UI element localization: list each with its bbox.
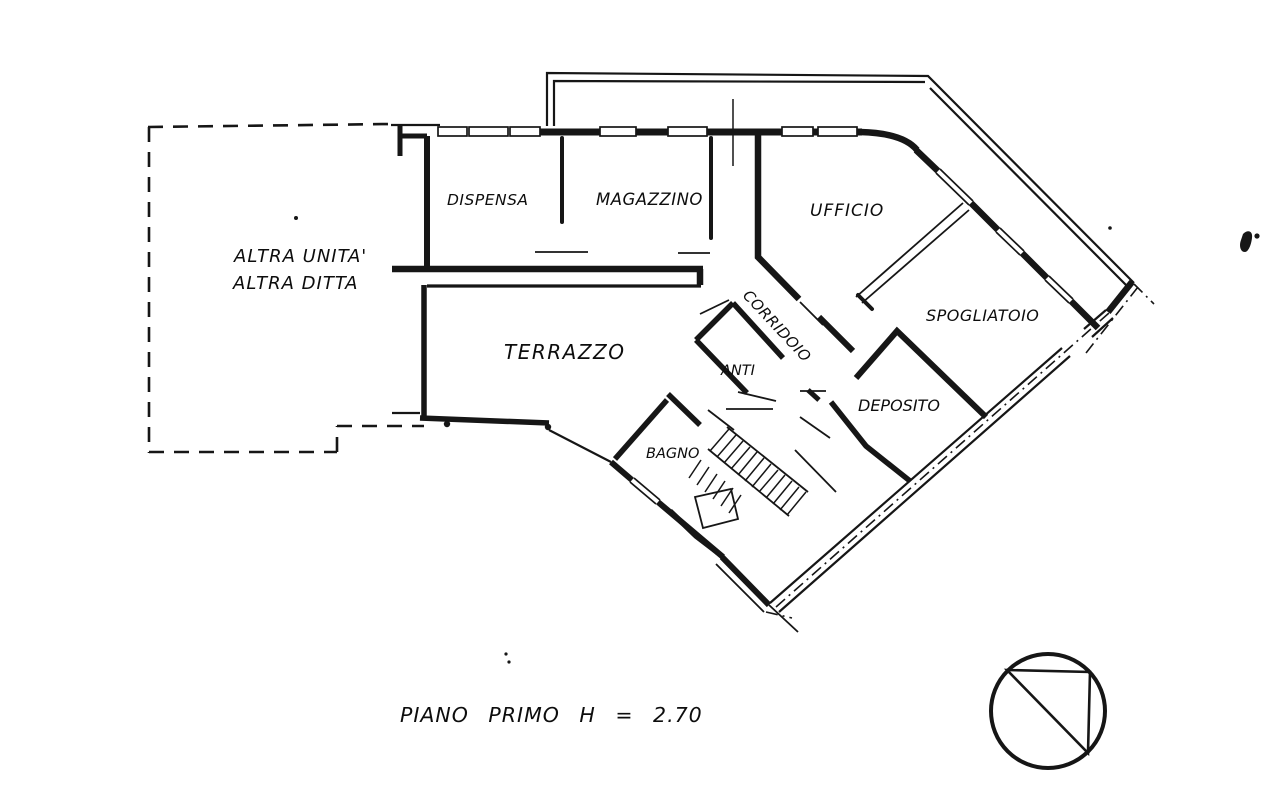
east-corner-wall: [1108, 282, 1132, 312]
floorplan-page: ALTRA UNITA' ALTRA DITTA DISPENSA MAGAZZ…: [0, 0, 1280, 785]
room-label-altra-unita-line-1: ALTRA UNITA': [233, 246, 367, 267]
room-label-anti: ANTI: [720, 363, 755, 379]
anti-walls: [696, 303, 747, 393]
pilaster: [400, 126, 427, 156]
staircase: [689, 392, 836, 528]
room-label-spogliatoio: SPOGLIATOIO: [926, 306, 1039, 325]
room-label-bagno: BAGNO: [646, 446, 699, 462]
room-label-dispensa: DISPENSA: [447, 191, 529, 209]
terrace-edge-line: [549, 430, 611, 462]
room-label-deposito: DEPOSITO: [858, 396, 940, 415]
room-label-magazzino: MAGAZZINO: [596, 190, 703, 209]
stamp-circle-triangle: [991, 654, 1105, 768]
room-label-ufficio: UFFICIO: [810, 201, 884, 221]
outer-boundary-line: [547, 73, 1134, 287]
bagno-walls: [615, 394, 722, 556]
door-leaf-lines: [535, 252, 823, 325]
curved-corner-wall: [860, 132, 917, 150]
ufficio-corridor-walls: [733, 133, 853, 358]
ink-smudge-mark: [1240, 231, 1260, 252]
window-row-northeast: [936, 169, 1073, 303]
floor-title: PIANO PRIMO H = 2.70: [400, 703, 703, 727]
room-labels: ALTRA UNITA' ALTRA DITTA DISPENSA MAGAZZ…: [232, 190, 1039, 462]
floorplan-drawing: ALTRA UNITA' ALTRA DITTA DISPENSA MAGAZZ…: [0, 0, 1280, 785]
south-endcap-wall: [716, 557, 798, 632]
northeast-exterior-wall: [916, 150, 1132, 328]
north-exterior-wall: [391, 125, 917, 156]
room-label-terrazzo: TERRAZZO: [504, 340, 625, 364]
room-label-altra-unita-line-2: ALTRA DITTA: [232, 273, 358, 294]
